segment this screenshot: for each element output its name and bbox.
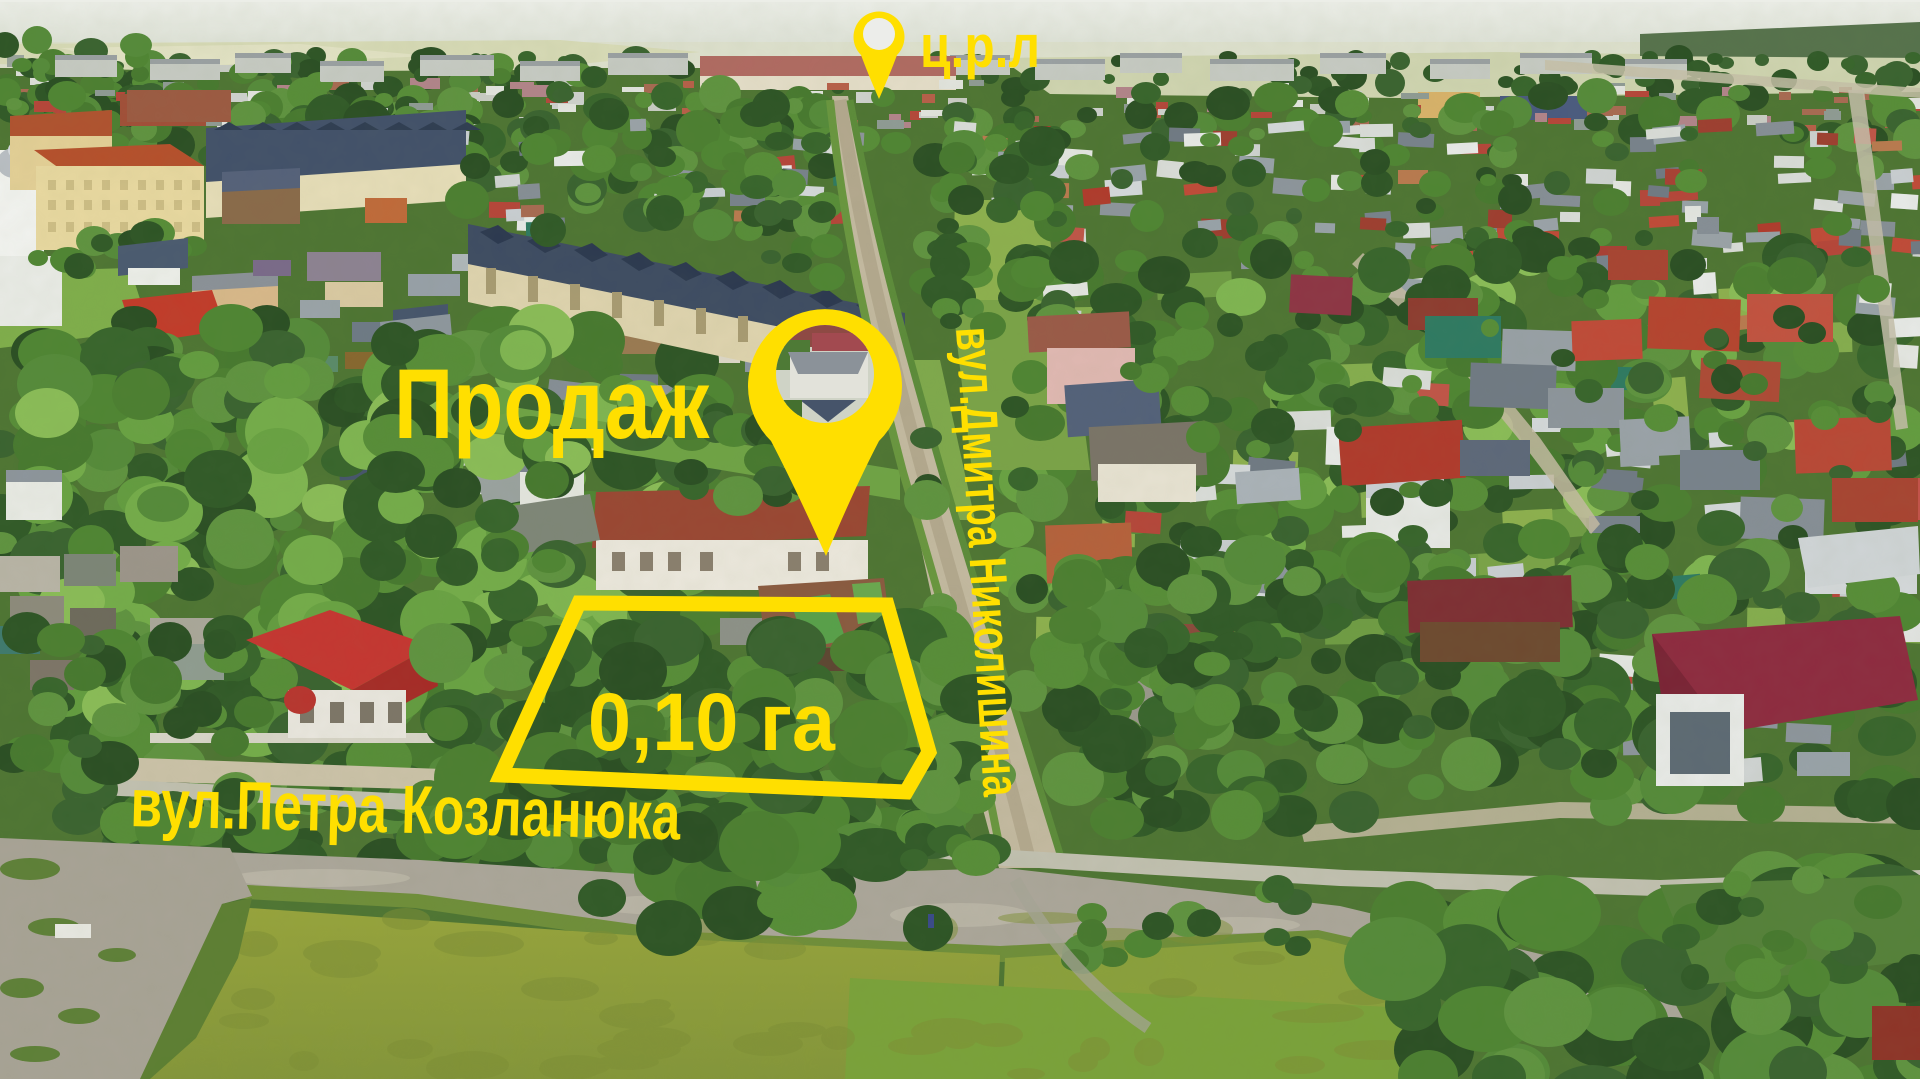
svg-text:вул.Петра Козланюка: вул.Петра Козланюка (130, 765, 683, 854)
svg-text:ц.р.л: ц.р.л (920, 13, 1040, 80)
svg-text:0,10 га: 0,10 га (588, 677, 836, 768)
svg-text:Продаж: Продаж (394, 348, 711, 459)
